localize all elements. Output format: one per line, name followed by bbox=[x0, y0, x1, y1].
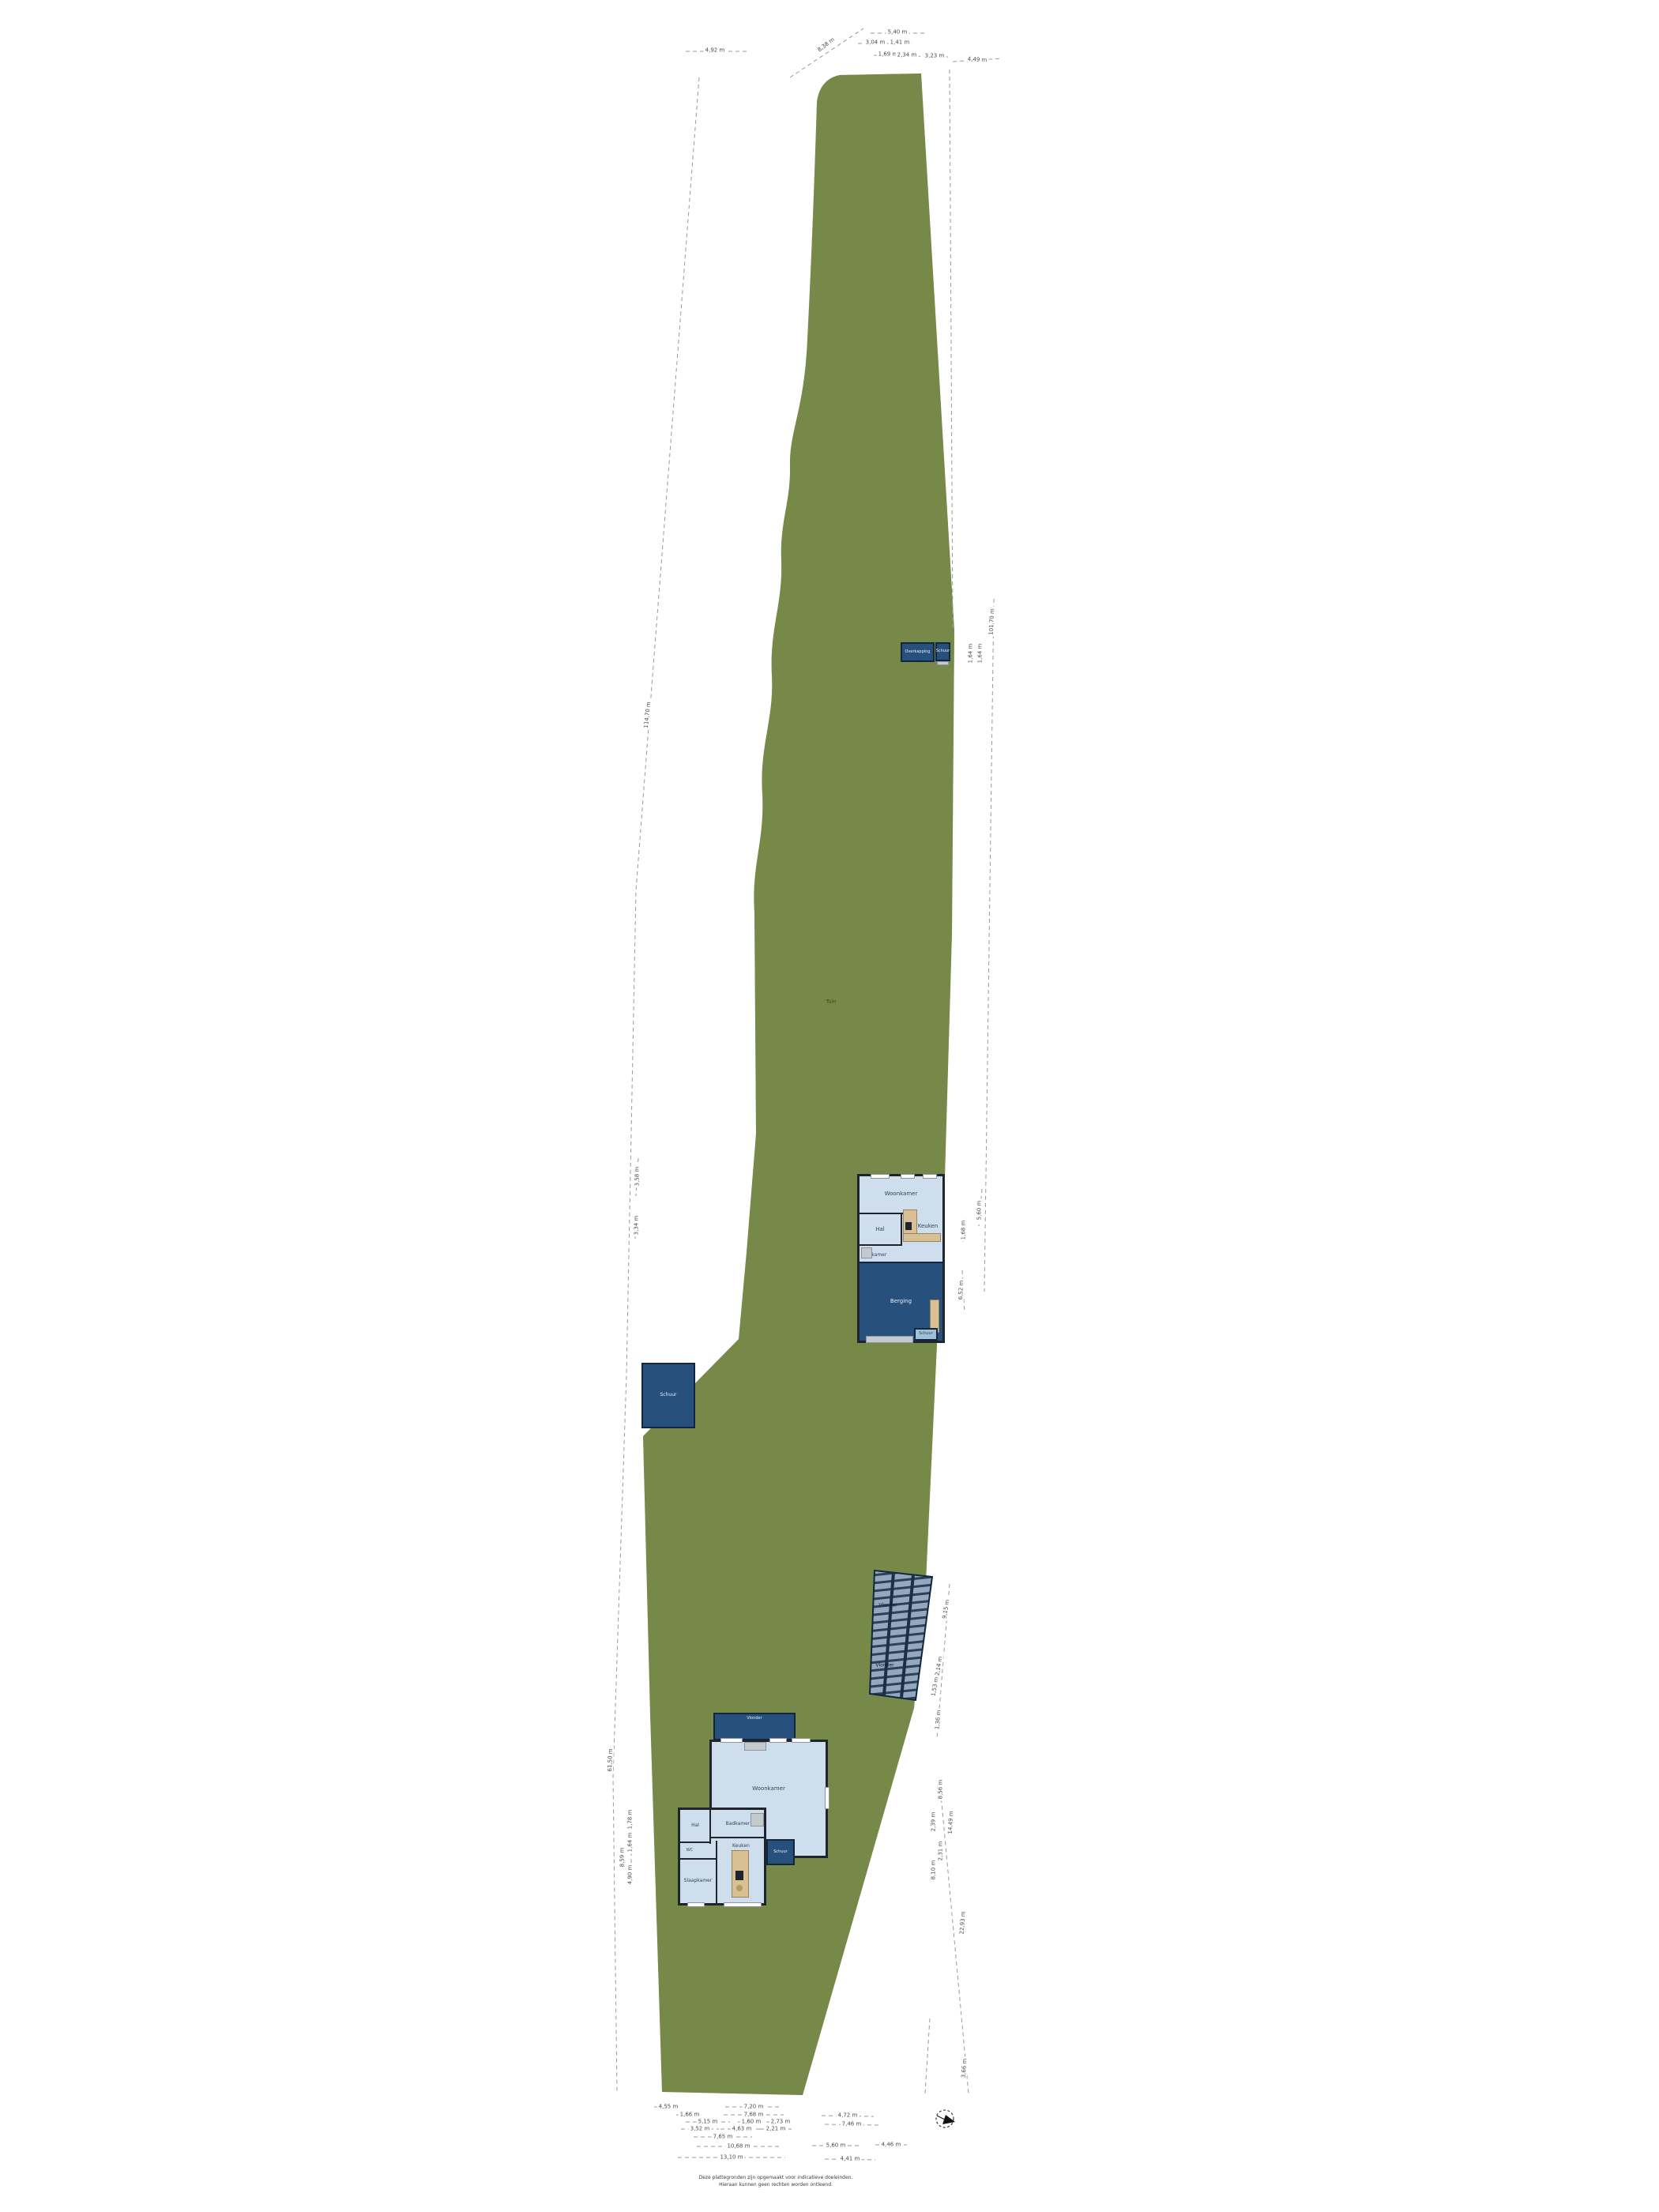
disclaimer: Deze plattegronden zijn opgemaakt voor i… bbox=[699, 2174, 853, 2188]
dimension-label: 1,64 m bbox=[628, 1831, 634, 1854]
window bbox=[720, 1738, 743, 1743]
deck-label-top: Vlonder bbox=[878, 1603, 897, 1608]
dimension-label: 4,72 m bbox=[837, 2113, 860, 2119]
shed-top-step bbox=[937, 661, 949, 665]
shed-overkapping-top: Overkapping bbox=[901, 642, 935, 662]
dimension-label: 4,92 m bbox=[704, 48, 727, 54]
dimension-label: 3,04 m bbox=[864, 40, 887, 46]
dimension-label: 2,73 m bbox=[769, 2120, 792, 2125]
dimension-label: 2,31 m bbox=[939, 1840, 944, 1863]
dimension-label: 1,41 m bbox=[889, 40, 912, 46]
house2: Woonkamer Hal Badkamer WC Slaapkamer Keu… bbox=[678, 1740, 798, 1905]
house2-schuur: Schuur bbox=[766, 1839, 795, 1865]
sink-icon bbox=[736, 1885, 743, 1891]
dimension-label: 8,56 m bbox=[939, 1778, 944, 1801]
dimension-label: 13,10 m bbox=[718, 2155, 744, 2161]
dimension-label: 1,66 m bbox=[679, 2112, 702, 2118]
dimension-label: 5,40 m bbox=[886, 30, 909, 36]
window bbox=[687, 1902, 705, 1907]
dimension-label: 3,34 m bbox=[634, 1214, 640, 1237]
dimension-label: 1,60 m bbox=[740, 2120, 763, 2125]
window bbox=[825, 1787, 829, 1809]
disclaimer-line1: Deze plattegronden zijn opgemaakt voor i… bbox=[699, 2174, 853, 2181]
dimension-label: 1,64 m bbox=[978, 642, 984, 665]
stove-icon bbox=[905, 1222, 912, 1230]
disclaimer-line2: Hieraan kunnen geen rechten worden ontle… bbox=[699, 2181, 853, 2188]
dimension-label: 1,68 m bbox=[961, 1219, 967, 1242]
dimension-label: 4,55 m bbox=[657, 2105, 680, 2110]
dimension-label: 8,10 m bbox=[931, 1859, 937, 1882]
dimension-label: 7,46 m bbox=[841, 2122, 863, 2127]
dimension-label: 7,68 m bbox=[743, 2112, 766, 2118]
stove-icon bbox=[735, 1871, 743, 1880]
garden-label: Tuin bbox=[826, 999, 836, 1005]
dimension-label: 4,41 m bbox=[839, 2157, 862, 2162]
window bbox=[769, 1738, 787, 1743]
shower-icon bbox=[750, 1813, 764, 1826]
dimension-label: 7,65 m bbox=[712, 2135, 735, 2140]
dimension-label: 5,60 m bbox=[977, 1199, 983, 1222]
dimension-label: 5,15 m bbox=[697, 2120, 720, 2125]
dimension-label: 2,21 m bbox=[765, 2127, 788, 2132]
house1-hal: Hal bbox=[860, 1214, 901, 1246]
dimension-label: 7,20 m bbox=[743, 2105, 766, 2110]
window bbox=[792, 1738, 811, 1743]
dimension-label: 3,23 m bbox=[924, 54, 946, 59]
dimension-label: 4,63 m bbox=[731, 2127, 754, 2132]
house1-schuur: Schuur bbox=[914, 1328, 938, 1341]
dimension-label: 4,90 m bbox=[628, 1864, 634, 1887]
dimension-label: 1,78 m bbox=[628, 1808, 634, 1831]
dimension-label: 10,68 m bbox=[725, 2144, 751, 2150]
shed-top-small: Schuur bbox=[935, 642, 950, 661]
site-plan-drawing bbox=[0, 0, 1659, 2212]
site-plan-canvas: Overkapping Schuur Tuin Woonkamer Hal Ke… bbox=[0, 0, 1659, 2212]
window bbox=[923, 1174, 937, 1179]
house2-hal: Hal bbox=[680, 1810, 710, 1841]
shed-label: Schuur bbox=[660, 1393, 677, 1398]
slatted-deck bbox=[870, 1571, 932, 1700]
house2-wc: WC bbox=[680, 1843, 699, 1859]
dimension-label: 61,50 m bbox=[608, 1747, 614, 1773]
house2-slaapkamer: Slaapkamer bbox=[680, 1860, 716, 1903]
shed-label: Overkapping bbox=[905, 650, 931, 655]
dimension-label: 2,39 m bbox=[931, 1811, 937, 1834]
shower-icon bbox=[861, 1247, 872, 1258]
dimension-label: 3,52 m bbox=[689, 2127, 712, 2132]
shed-label: Schuur bbox=[936, 649, 950, 654]
house1-path bbox=[866, 1336, 913, 1343]
dimension-label: 3,58 m bbox=[635, 1165, 641, 1188]
dimension-label: 2,34 m bbox=[896, 53, 919, 58]
compass-icon bbox=[936, 2110, 955, 2127]
house2-terras: Vlonder bbox=[713, 1713, 796, 1740]
dimension-label: 1,64 m bbox=[969, 642, 974, 665]
dimension-label: 8,59 m bbox=[620, 1846, 626, 1869]
window bbox=[724, 1902, 762, 1907]
deck-label-bottom: Vlonder bbox=[875, 1663, 893, 1668]
dimension-label: 5,60 m bbox=[825, 2143, 848, 2149]
kitchen-counter bbox=[903, 1233, 941, 1242]
dimension-label: 4,46 m bbox=[880, 2142, 903, 2148]
entry-step bbox=[744, 1742, 766, 1751]
window bbox=[901, 1174, 915, 1179]
house1: Woonkamer Hal Keuken Badkamer Berging Sc… bbox=[857, 1174, 945, 1343]
window bbox=[871, 1174, 890, 1179]
shed-left: Schuur bbox=[641, 1363, 695, 1428]
dimension-label: 6,52 m bbox=[958, 1279, 965, 1302]
